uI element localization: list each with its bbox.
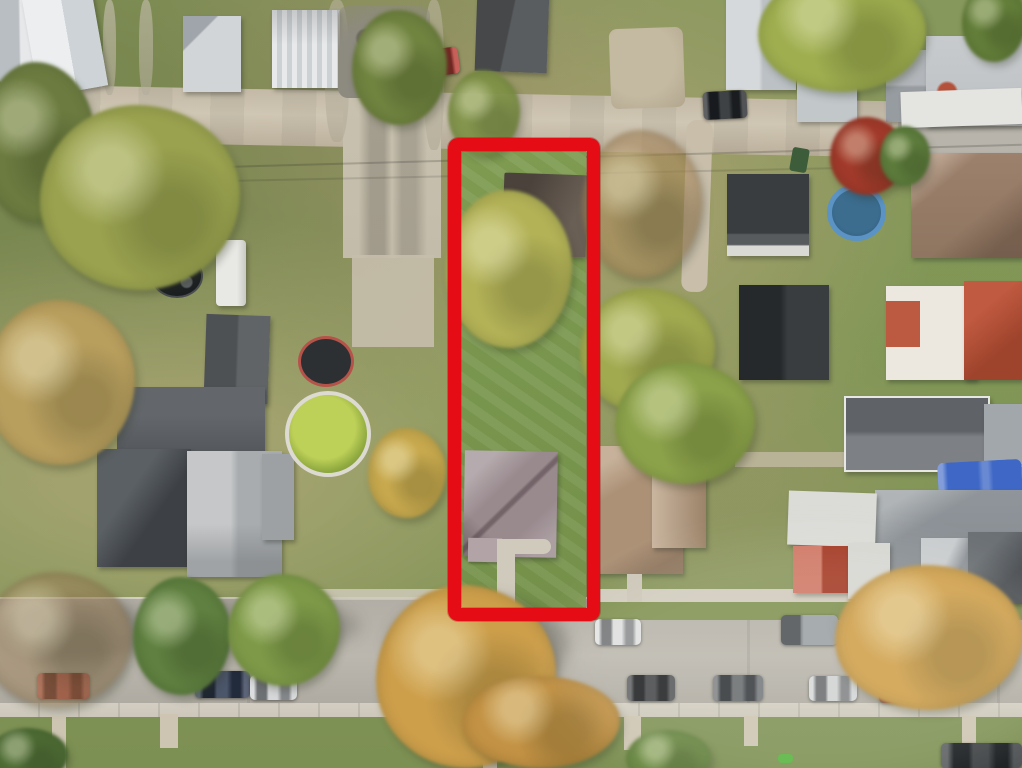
tree-mid-cluster-2	[615, 362, 755, 484]
front-walk-2	[160, 714, 178, 748]
neighbor-walkway	[627, 574, 642, 602]
black-car-south-side	[627, 675, 675, 701]
black-car-alley-right	[702, 90, 747, 120]
aerial-photo	[0, 0, 1022, 768]
red-shed-roof	[793, 546, 851, 593]
tree-green-by-maple	[880, 126, 930, 186]
red-roof-section-left	[886, 301, 920, 347]
red-roof-section-right	[964, 281, 1022, 380]
left-driveway-lower	[352, 255, 434, 347]
left-house-east-ext	[262, 454, 294, 540]
garage-gray-gable	[183, 16, 241, 92]
white-roof-strip	[900, 88, 1022, 128]
gray-car-south-side	[713, 675, 763, 701]
dark-garage-top	[475, 0, 550, 73]
tree-left-mid-golden	[0, 300, 135, 465]
dark-suv-corner	[941, 743, 1022, 768]
tree-bottom-right-golden	[835, 565, 1022, 710]
tree-left-yellow-green	[40, 105, 240, 290]
white-shed-a	[787, 490, 877, 547]
red-white-roof-house	[886, 281, 1022, 380]
tree-bottom-golden-2	[462, 676, 620, 768]
metal-shed	[272, 10, 340, 88]
front-walk-5	[744, 716, 758, 746]
tree-top-mid-green	[352, 10, 447, 125]
tree-bottom-green-1	[133, 577, 231, 695]
tree-sparse-tan-right-of-lot	[582, 130, 702, 278]
silver-car-north-side	[595, 619, 641, 645]
left-house-dark-section	[97, 449, 191, 567]
trampoline-orange-rim	[298, 336, 354, 387]
black-garage-mid-right	[739, 285, 829, 380]
pickup-truck-north-side	[781, 615, 838, 645]
silver-car-south-side-2	[809, 676, 857, 701]
dark-shed-right	[727, 174, 809, 256]
shrub-orange-small	[368, 428, 446, 518]
brown-roof-house-right	[911, 153, 1022, 258]
green-algae-pool	[285, 391, 371, 477]
gravel-pad	[609, 27, 686, 110]
play-toy-green-2	[778, 754, 793, 763]
lot-boundary-outline	[448, 138, 600, 621]
tree-bottom-green-2	[228, 574, 340, 686]
roof-right-edge	[984, 404, 1022, 464]
tree-trunk-streak-2	[139, 0, 153, 95]
front-walk-6	[962, 716, 976, 746]
